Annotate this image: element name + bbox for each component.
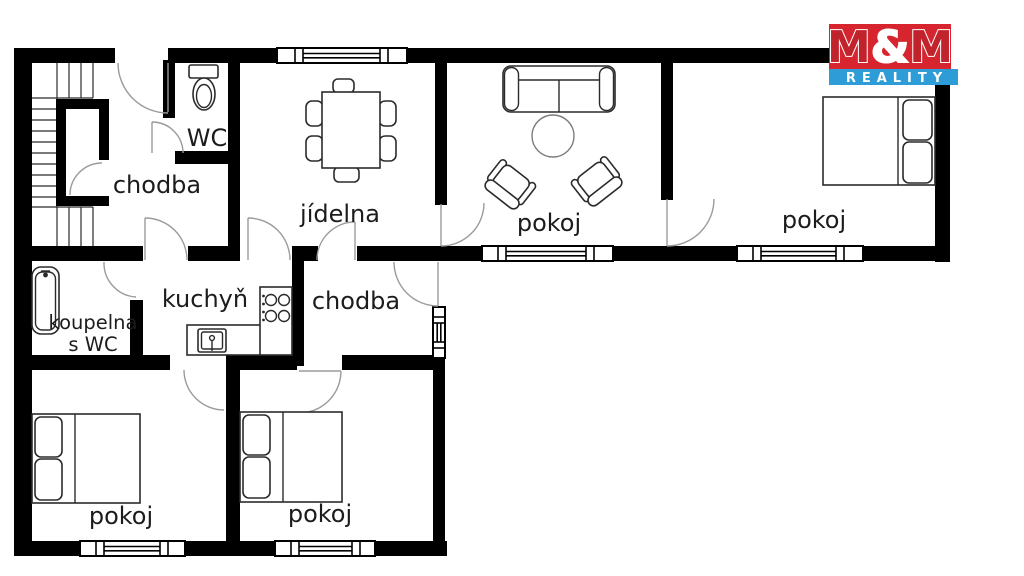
coffee-table-symbol <box>532 115 574 157</box>
bed-symbol-bottom-middle <box>240 412 342 502</box>
kitchen-to-bedroom-left-door <box>184 370 224 410</box>
wc-door <box>152 122 183 153</box>
room-label-bedroom-bottom-left: pokoj <box>89 502 153 530</box>
bathroom-door <box>104 262 136 297</box>
room-label-bedroom-bottom-middle: pokoj <box>288 500 352 528</box>
room-label-bedroom-right: pokoj <box>782 206 846 234</box>
entry-door <box>118 63 168 113</box>
room-label-wc: WC <box>187 124 228 152</box>
logo-mm-text: M&M <box>827 22 953 73</box>
room-label-kitchen: kuchyň <box>162 285 248 313</box>
dining-table-symbol <box>306 79 396 182</box>
room-label-bathroom-line1: koupelna <box>49 311 138 334</box>
storage-room <box>56 99 111 206</box>
logo-letter-m1: M <box>827 22 871 73</box>
toilet-symbol <box>189 65 218 110</box>
bed-symbol-bottom-left <box>32 414 140 503</box>
window-bedroom-bottom-middle <box>275 541 375 556</box>
sink-symbol <box>198 329 226 352</box>
room-label-hall-top: chodba <box>113 171 201 199</box>
room-label-hall-middle: chodba <box>312 287 400 315</box>
room-label-dining: jídelna <box>299 200 380 228</box>
window-bedroom-bottom-left <box>80 541 185 556</box>
room-label-living: pokoj <box>517 209 581 237</box>
brand-logo: M&M REALITY <box>827 22 958 86</box>
room-label-bathroom-line2: s WC <box>68 333 117 356</box>
logo-reality-text: REALITY <box>846 71 948 86</box>
floor-plan-page: chodba WC jídelna pokoj pokoj koupelna s… <box>0 0 1024 576</box>
window-dining <box>277 48 407 63</box>
armchair-symbol-left <box>481 158 537 212</box>
hall-to-kitchen-door <box>145 218 187 260</box>
bed-symbol-right <box>823 97 935 185</box>
window-bedroom-right <box>737 246 863 261</box>
window-living <box>482 246 613 261</box>
logo-letter-m2: M <box>909 22 953 73</box>
living-to-bedroom-door <box>667 199 714 246</box>
walls <box>14 48 950 556</box>
dining-to-kitchen-door <box>248 218 290 260</box>
logo-ampersand: & <box>871 22 909 73</box>
hall-middle-exterior-door <box>394 262 438 306</box>
window-hall-middle <box>433 307 445 358</box>
dining-to-living-door <box>441 203 484 246</box>
stove-symbol <box>260 287 292 355</box>
sofa-symbol <box>503 66 615 112</box>
hall-to-bedroom-middle-door <box>299 371 341 413</box>
apartment-floor-plan: chodba WC jídelna pokoj pokoj koupelna s… <box>0 0 1024 576</box>
armchair-symbol-right <box>570 155 626 209</box>
